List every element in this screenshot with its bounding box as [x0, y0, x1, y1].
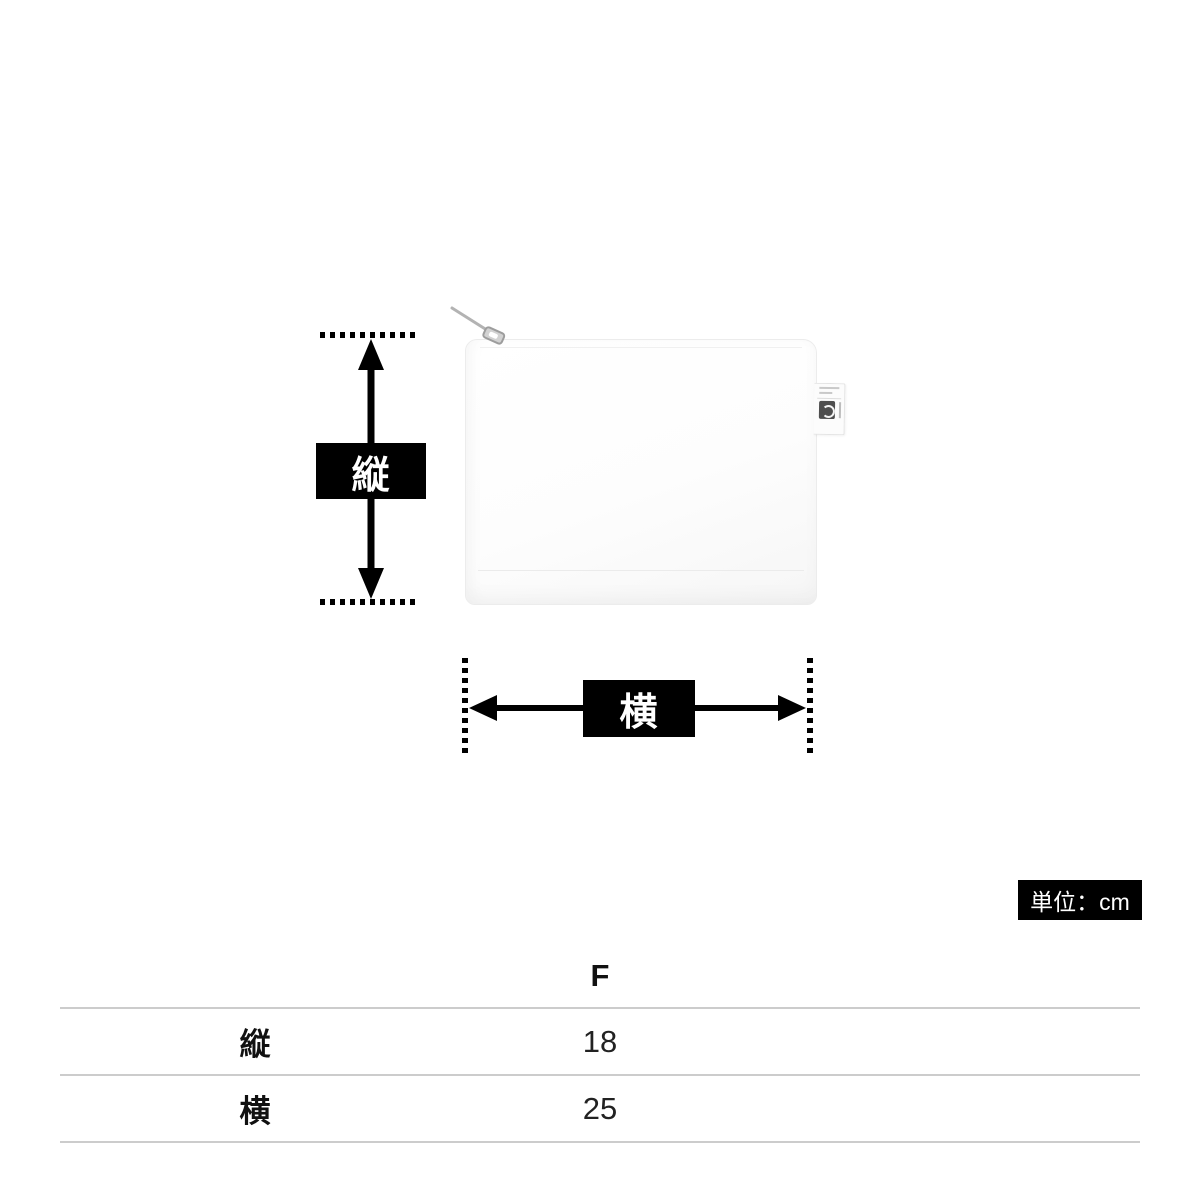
horizontal-dimension-label: 横 [583, 680, 695, 737]
row-value-width: 25 [450, 1091, 750, 1127]
row-label-height: 縦 [60, 1019, 450, 1064]
fairtrade-logo-icon [819, 401, 835, 419]
zipper-pull-icon [438, 298, 518, 350]
vertical-dimension-label: 縦 [316, 443, 426, 499]
tag-text-line [819, 392, 832, 394]
size-column-header: F [450, 958, 750, 994]
zipper-track [480, 347, 802, 348]
arrow-head-left-icon [469, 695, 497, 721]
tag-side-text [839, 402, 841, 418]
unit-badge: 単位：cm [1018, 880, 1142, 920]
row-value-height: 18 [450, 1024, 750, 1060]
table-row-width: 横 25 [60, 1076, 1140, 1143]
size-guide-page: 縦 横 単位：cm F [0, 0, 1200, 1200]
arrow-head-down-icon [358, 568, 384, 599]
arrow-head-right-icon [778, 695, 806, 721]
size-table: F 縦 18 横 25 [60, 945, 1140, 1143]
table-header-row: F [60, 945, 1140, 1009]
tag-text-line [819, 387, 839, 389]
pouch-bottom-seam [478, 570, 804, 571]
arrow-head-up-icon [358, 339, 384, 370]
table-row-height: 縦 18 [60, 1009, 1140, 1076]
row-label-width: 横 [60, 1086, 450, 1131]
tag-divider [817, 398, 841, 399]
pouch-product-image [465, 339, 817, 605]
fairtrade-tag [814, 383, 846, 436]
